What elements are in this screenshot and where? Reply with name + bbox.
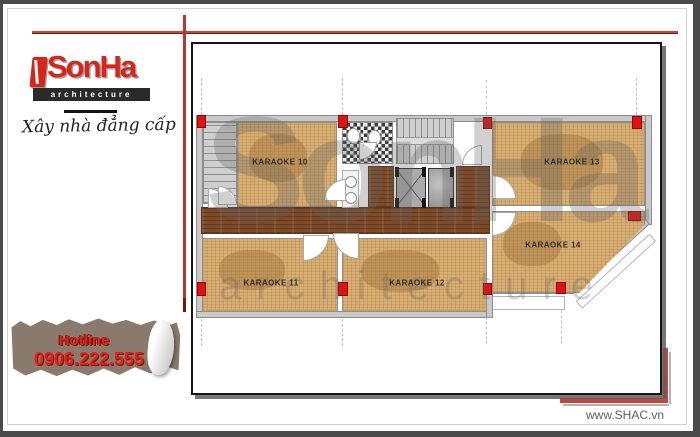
datum-line: [486, 80, 487, 115]
datum-line: [342, 78, 343, 115]
room-label-karaoke-14: KARAOKE 14: [525, 241, 581, 250]
room-label-karaoke-13: KARAOKE 13: [544, 158, 600, 167]
stair-landing: [396, 137, 454, 145]
poster-frame: SonHa architecture Xây nhà đẳng cấp Hotl…: [0, 0, 700, 437]
room-label-karaoke-11: KARAOKE 11: [243, 279, 298, 288]
brand-tagline: Xây nhà đẳng cấp: [22, 115, 182, 138]
logo-subtext: architecture: [33, 88, 150, 101]
red-corner-rule-v: [663, 348, 668, 400]
terrace-outline: [485, 296, 565, 310]
column-marker: [483, 117, 492, 129]
column-marker: [483, 283, 492, 295]
red-corner-shadow-v: [669, 352, 671, 404]
frame-edge-left: [0, 0, 3, 437]
column-marker: [338, 115, 348, 128]
logo-flag-icon: [29, 57, 47, 87]
elevator-post: [450, 198, 454, 208]
frame-edge-right: [693, 0, 700, 437]
hotline-label: Hotline: [14, 332, 154, 349]
hotline-number: 0906.222.555: [4, 349, 174, 370]
wall-right: [645, 115, 652, 225]
column-marker: [556, 282, 566, 294]
room-label-karaoke-10: KARAOKE 10: [252, 158, 308, 167]
column-marker: [628, 211, 641, 221]
elevator-post: [450, 167, 454, 177]
red-rule-horizontal: [32, 31, 678, 34]
red-corner-shadow-h: [563, 404, 669, 406]
elevator-post: [395, 198, 399, 208]
elevator-post: [422, 167, 426, 177]
bath-partition: [363, 122, 364, 146]
hall-wood: [368, 166, 394, 208]
datum-line: [201, 319, 202, 346]
sink-icon: [345, 176, 357, 188]
sink-icon: [345, 192, 357, 204]
wall-bottom-left: [196, 311, 493, 318]
elevator-post: [395, 167, 399, 177]
datum-line: [201, 78, 202, 115]
red-rule-vertical-cap: [183, 298, 186, 312]
column-marker: [197, 115, 206, 128]
door-arc: [462, 145, 482, 165]
floor-plan-canvas: SonHa architecture KARAOKE 10 KARAOKE 11…: [191, 42, 662, 395]
logo-underline: [64, 110, 117, 113]
red-corner-rule-h: [560, 398, 668, 403]
red-rule-vertical: [183, 15, 186, 298]
frame-edge-bottom: [0, 431, 700, 437]
column-marker: [197, 282, 206, 296]
elevator-post: [422, 198, 426, 208]
room-label-karaoke-12: KARAOKE 12: [389, 279, 445, 288]
datum-line: [342, 319, 343, 346]
website-url: www.SHAC.vn: [566, 408, 684, 422]
corridor: [201, 207, 490, 234]
datum-line: [636, 78, 637, 115]
logo-wordmark: SonHa: [47, 51, 135, 82]
lobby-wood: [456, 166, 490, 208]
column-marker: [338, 282, 348, 296]
column-marker: [632, 116, 642, 129]
frame-edge-top: [0, 0, 700, 4]
